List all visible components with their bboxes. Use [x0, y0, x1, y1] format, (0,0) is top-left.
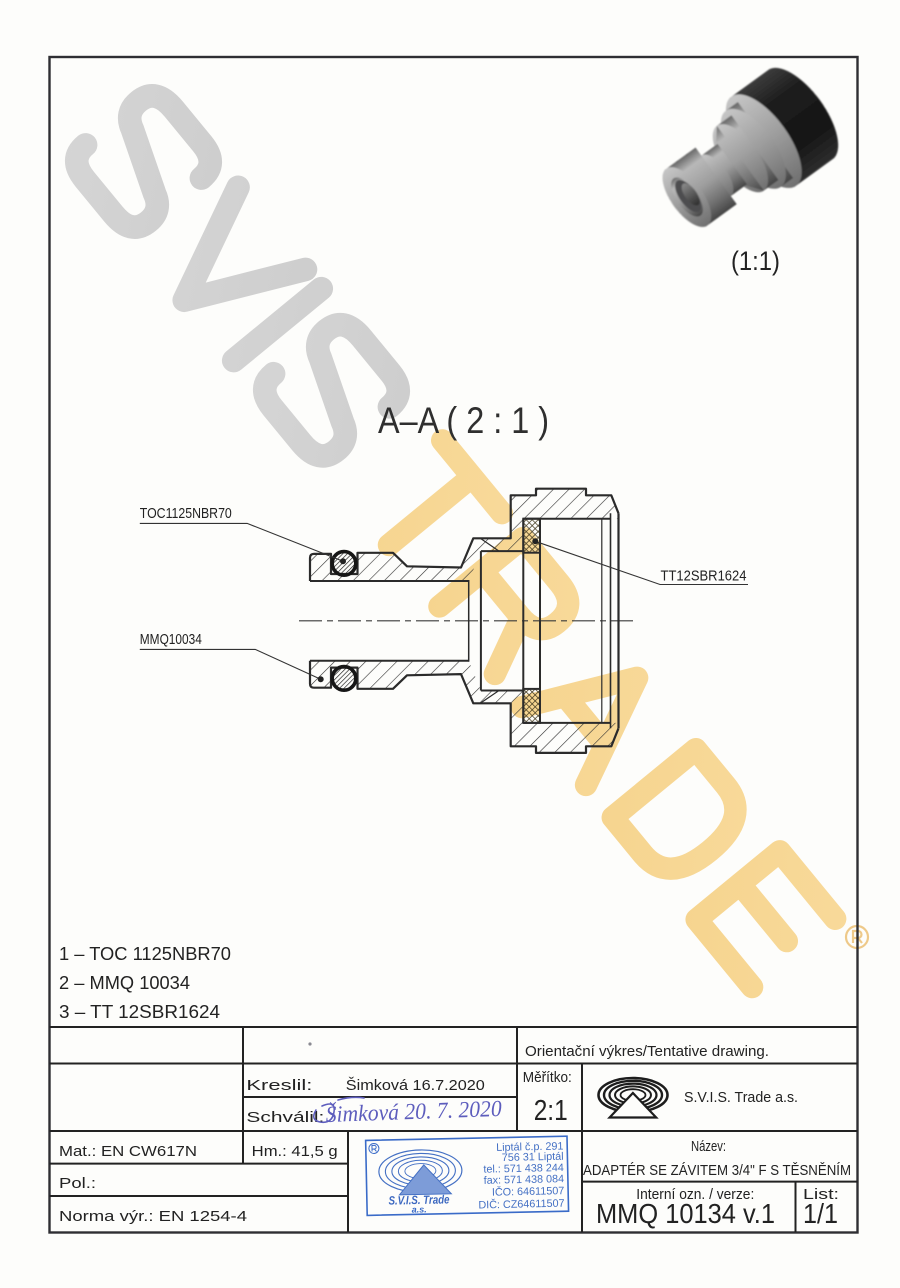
svg-text:1 – TOC 1125NBR70: 1 – TOC 1125NBR70 — [59, 943, 231, 964]
svg-text:(1:1): (1:1) — [731, 246, 780, 276]
svg-text:Norma výr.: EN 1254-4: Norma výr.: EN 1254-4 — [59, 1209, 247, 1225]
svg-text:S.V.I.S. Trade a.s.: S.V.I.S. Trade a.s. — [684, 1090, 798, 1106]
svg-text:Pol.:: Pol.: — [59, 1176, 96, 1192]
svg-text:a.s.: a.s. — [412, 1204, 427, 1214]
svg-text:Název:: Název: — [691, 1139, 726, 1155]
svg-text:Hm.: 41,5 g: Hm.: 41,5 g — [252, 1144, 338, 1160]
svg-text:Šimková 16.7.2020: Šimková 16.7.2020 — [346, 1077, 485, 1094]
svg-text:Kreslil:: Kreslil: — [246, 1078, 312, 1094]
svg-text:TOC1125NBR70: TOC1125NBR70 — [140, 506, 232, 522]
svg-text:DIČ: CZ64611507: DIČ: CZ64611507 — [478, 1197, 564, 1212]
svg-text:2 – MMQ 10034: 2 – MMQ 10034 — [59, 972, 190, 993]
svg-text:1/1: 1/1 — [803, 1198, 838, 1229]
svg-text:Orientační výkres/Tentative dr: Orientační výkres/Tentative drawing. — [525, 1044, 769, 1060]
svg-text:3 – TT 12SBR1624: 3 – TT 12SBR1624 — [59, 1001, 220, 1022]
svg-text:Schválil:: Schválil: — [246, 1110, 324, 1126]
svg-text:TT12SBR1624: TT12SBR1624 — [661, 569, 747, 585]
svg-text:Měřítko:: Měřítko: — [523, 1070, 572, 1086]
svg-text:IČO: 64611507: IČO: 64611507 — [492, 1184, 565, 1199]
svg-text:2:1: 2:1 — [534, 1095, 568, 1127]
svg-text:MMQ 10134 v.1: MMQ 10134 v.1 — [596, 1198, 775, 1229]
svg-text:ADAPTÉR SE ZÁVITEM 3/4" F S TĚ: ADAPTÉR SE ZÁVITEM 3/4" F S TĚSNĚNÍM — [583, 1162, 851, 1179]
svg-text:A–A ( 2 : 1 ): A–A ( 2 : 1 ) — [378, 399, 549, 441]
svg-text:Mat.: EN CW617N: Mat.: EN CW617N — [59, 1144, 197, 1160]
svg-text:MMQ10034: MMQ10034 — [140, 632, 202, 648]
